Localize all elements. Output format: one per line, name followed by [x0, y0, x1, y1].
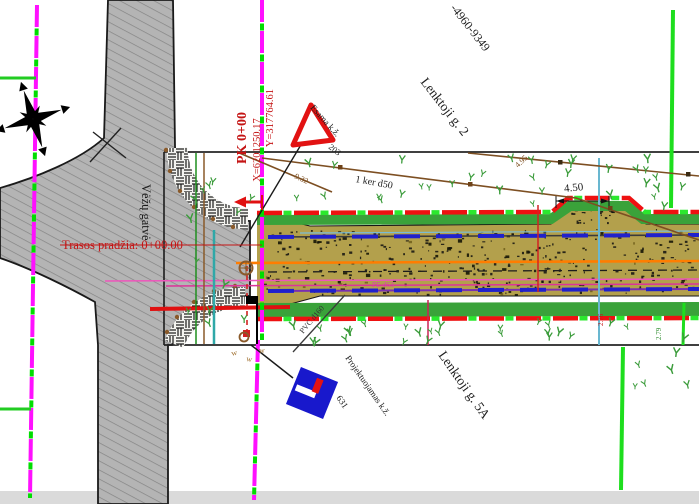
green-line-lower-right — [621, 347, 623, 490]
dim-c-label: 2.76 — [597, 313, 605, 326]
dim-d-label: 2.79 — [655, 327, 663, 340]
site-plan-svg: w w w PK 0+00 X=6201250.17 Y=317764.61 T… — [0, 0, 699, 504]
plan-drawing-canvas: { "drawing": { "streets": { "vertical": … — [0, 0, 699, 504]
dim-width-label: 4.50 — [563, 181, 584, 195]
svg-text:w: w — [259, 346, 265, 355]
street-vertical-label: Vėžų gatvė — [139, 184, 153, 241]
thick-red-segment — [150, 307, 290, 309]
pe-label: PE d63 — [372, 280, 394, 289]
station-y-label: Y=317764.61 — [265, 89, 276, 147]
station-pk-label: PK 0+00 — [235, 112, 250, 164]
station-x-label: X=6201250.17 — [252, 118, 263, 181]
green-line-upper-right — [671, 10, 673, 208]
route-start-label: Trasos pradžia: 0+00.00 — [62, 238, 183, 252]
